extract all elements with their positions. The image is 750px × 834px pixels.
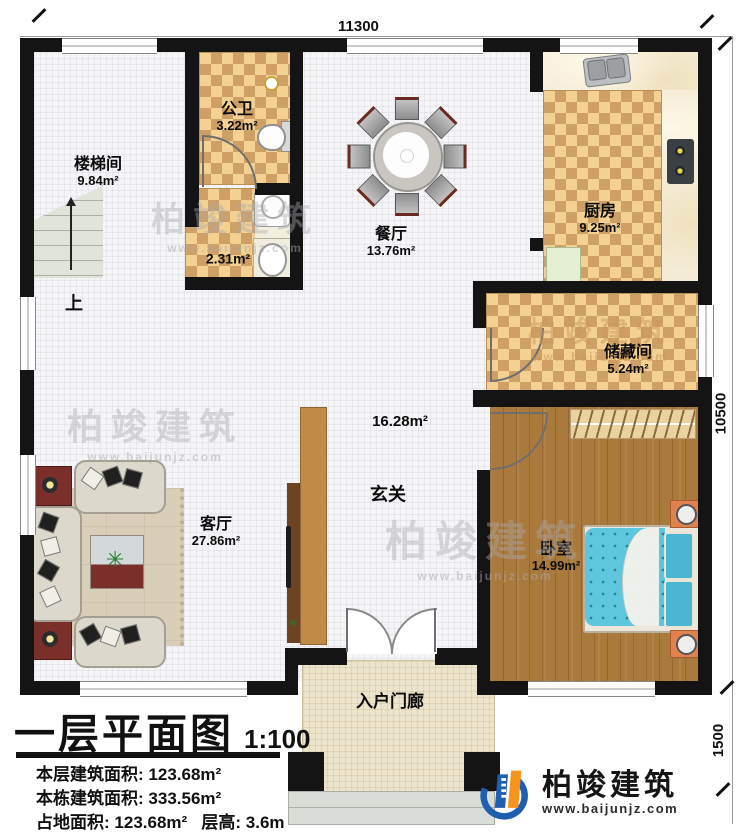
dimension-tick-icon — [32, 8, 47, 23]
dimension-tick-icon — [718, 36, 733, 51]
window — [528, 681, 655, 697]
kitchen-counter-right — [660, 90, 698, 281]
wall-segment — [530, 52, 543, 92]
floor-plan-canvas: 11300 10500 1500 — [0, 0, 750, 834]
bathroom-door-leaf — [202, 135, 204, 187]
porch-step — [288, 807, 495, 825]
room-label-bedroom: 卧室14.99m² — [532, 542, 580, 572]
sink-basin-left — [587, 59, 607, 81]
dimension-top: 11300 — [338, 18, 379, 35]
chair-icon — [395, 97, 419, 120]
window — [20, 455, 36, 535]
bedroom-door-leaf — [491, 412, 546, 414]
storage-door-leaf — [490, 328, 492, 380]
room-label-stairwell: 楼梯间9.84m² — [74, 157, 122, 187]
brand-url: www.baijunjz.com — [542, 801, 678, 816]
table-lamp-icon — [676, 634, 697, 655]
window — [347, 38, 483, 54]
chair-icon — [348, 145, 371, 169]
info-floor-area: 本层建筑面积: 123.68m² — [36, 760, 221, 785]
sink-basin-right — [606, 57, 626, 79]
title-text: 一层平面图 — [14, 711, 234, 757]
dimension-line-top — [20, 36, 733, 37]
window — [698, 305, 714, 377]
brand-logo-icon — [478, 765, 534, 821]
bed-pillow — [664, 580, 694, 628]
info-building-area: 本栋建筑面积: 333.56m² — [36, 784, 221, 809]
room-label-storage: 储藏间5.24m² — [604, 345, 652, 375]
window — [80, 681, 247, 697]
dimension-right: 10500 — [712, 393, 729, 435]
table-lamp-icon — [42, 477, 58, 493]
dimension-bottom-right: 1500 — [710, 724, 727, 757]
wall-segment — [473, 390, 698, 407]
brand-logo: 柏竣建筑 www.baijunjz.com — [478, 760, 728, 826]
dimension-tick-icon — [700, 14, 715, 29]
plan-title: 一层平面图1:100 — [14, 700, 311, 760]
tv-feature-wall — [300, 407, 327, 645]
wardrobe — [570, 409, 696, 439]
room-label-dining: 餐厅13.76m² — [367, 227, 415, 257]
chair-icon — [444, 145, 467, 169]
wall-segment — [530, 238, 543, 251]
bed-pillow — [664, 532, 694, 580]
room-area-foyer: 16.28m² — [372, 414, 428, 430]
wall-segment — [255, 183, 303, 195]
chair-icon — [395, 193, 419, 216]
room-label-corridor: 2.31m² — [206, 252, 250, 267]
wall-segment — [185, 52, 199, 227]
wall-segment — [185, 277, 303, 290]
wall-segment — [285, 648, 298, 695]
info-footprint-height: 占地面积: 123.68m² 层高: 3.6m — [36, 808, 285, 833]
plant-icon: ✳ — [106, 549, 128, 571]
window — [20, 297, 36, 370]
stairs-up-label: 上 — [65, 295, 83, 314]
scale-text: 1:100 — [244, 724, 311, 754]
window — [560, 38, 638, 54]
entry-door-leaf — [346, 608, 348, 652]
washer-drum — [261, 195, 285, 219]
table-lamp-icon — [676, 504, 697, 525]
room-label-porch: 入户门廊 — [356, 693, 424, 711]
room-label-bathroom: 公卫3.22m² — [216, 102, 257, 132]
title-underline — [16, 752, 280, 758]
brand-name: 柏竣建筑 — [542, 771, 678, 801]
entry-door-leaf — [434, 608, 436, 652]
wall-segment — [473, 281, 698, 293]
room-label-kitchen: 厨房9.25m² — [579, 204, 620, 234]
table-center-ring — [400, 149, 414, 163]
table-lamp-icon — [42, 631, 58, 647]
wall-segment — [473, 293, 486, 328]
tv-icon — [286, 526, 291, 588]
fridge-icon — [546, 247, 581, 283]
stove-burner — [675, 146, 685, 156]
floor-drain-icon — [264, 76, 279, 91]
up-arrow-icon — [70, 200, 72, 270]
stove-burner — [675, 166, 685, 176]
wall-segment — [435, 648, 490, 665]
toilet-icon — [257, 124, 286, 151]
wall-segment — [298, 648, 347, 665]
window — [62, 38, 157, 54]
room-label-foyer: 玄关 — [370, 486, 406, 505]
wall-segment — [290, 52, 303, 290]
sink-basin-icon — [258, 243, 287, 277]
room-label-living: 客厅27.86m² — [192, 517, 240, 547]
dimension-line-right — [732, 36, 733, 824]
plant-icon: ✳ — [288, 616, 299, 630]
